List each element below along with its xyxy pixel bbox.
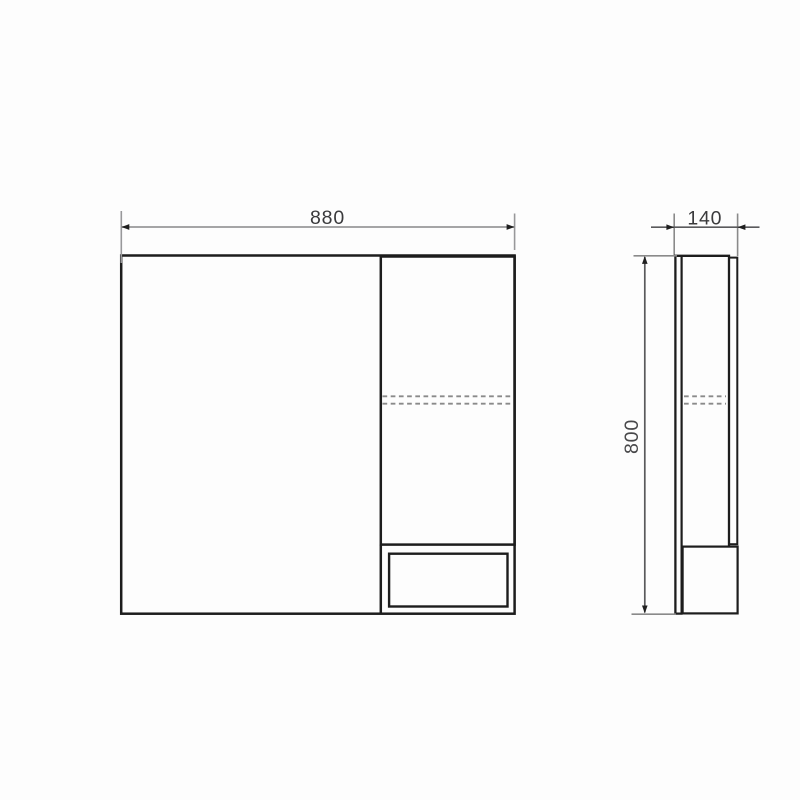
svg-text:800: 800: [621, 419, 643, 454]
svg-text:880: 880: [310, 207, 345, 229]
svg-text:140: 140: [687, 208, 722, 230]
